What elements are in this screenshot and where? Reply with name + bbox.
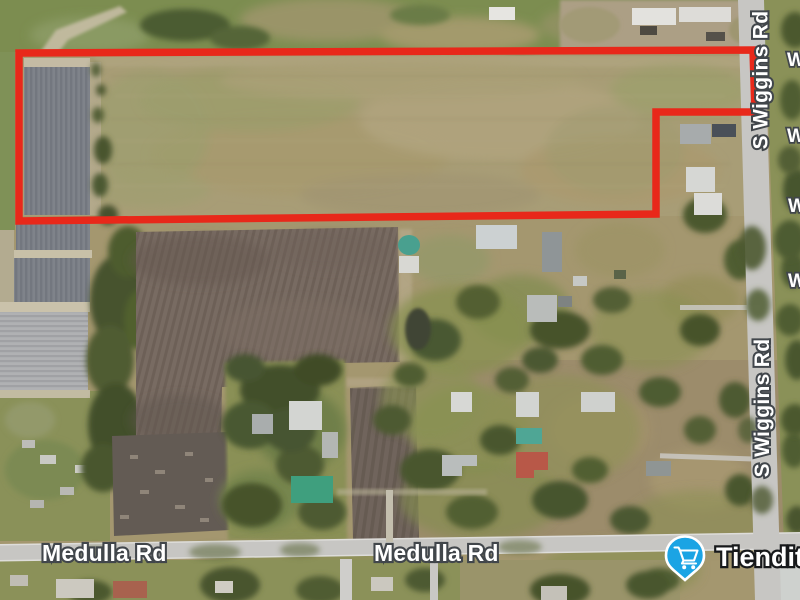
svg-text:W: W: [788, 271, 800, 292]
svg-text:Medulla Rd: Medulla Rd: [374, 540, 499, 566]
svg-text:Medulla Rd: Medulla Rd: [42, 540, 167, 566]
svg-text:W: W: [787, 126, 800, 147]
svg-text:Tiendita: Tiendita: [716, 542, 800, 572]
svg-text:S Wiggins Rd: S Wiggins Rd: [750, 11, 773, 150]
svg-text:W: W: [787, 50, 800, 71]
svg-text:W: W: [788, 196, 800, 217]
svg-text:S Wiggins Rd: S Wiggins Rd: [751, 339, 774, 478]
